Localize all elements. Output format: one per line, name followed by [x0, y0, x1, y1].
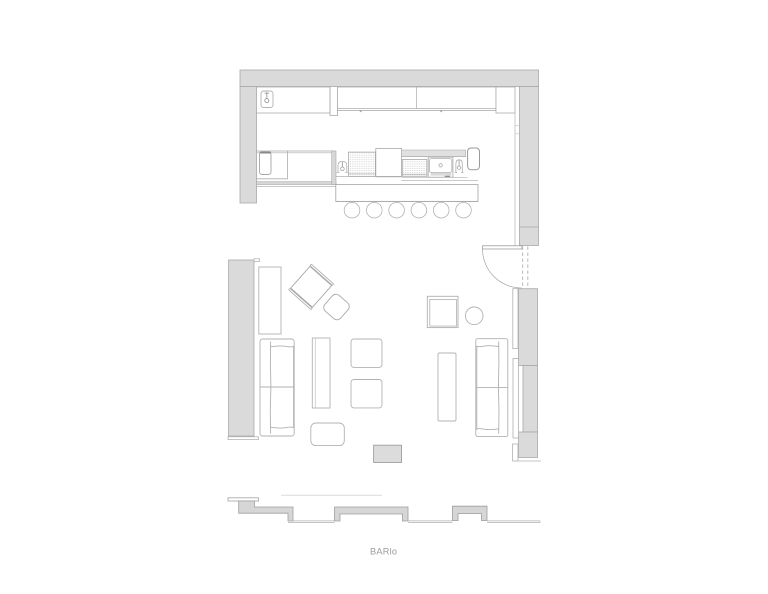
svg-text:BARlo: BARlo [370, 547, 397, 557]
